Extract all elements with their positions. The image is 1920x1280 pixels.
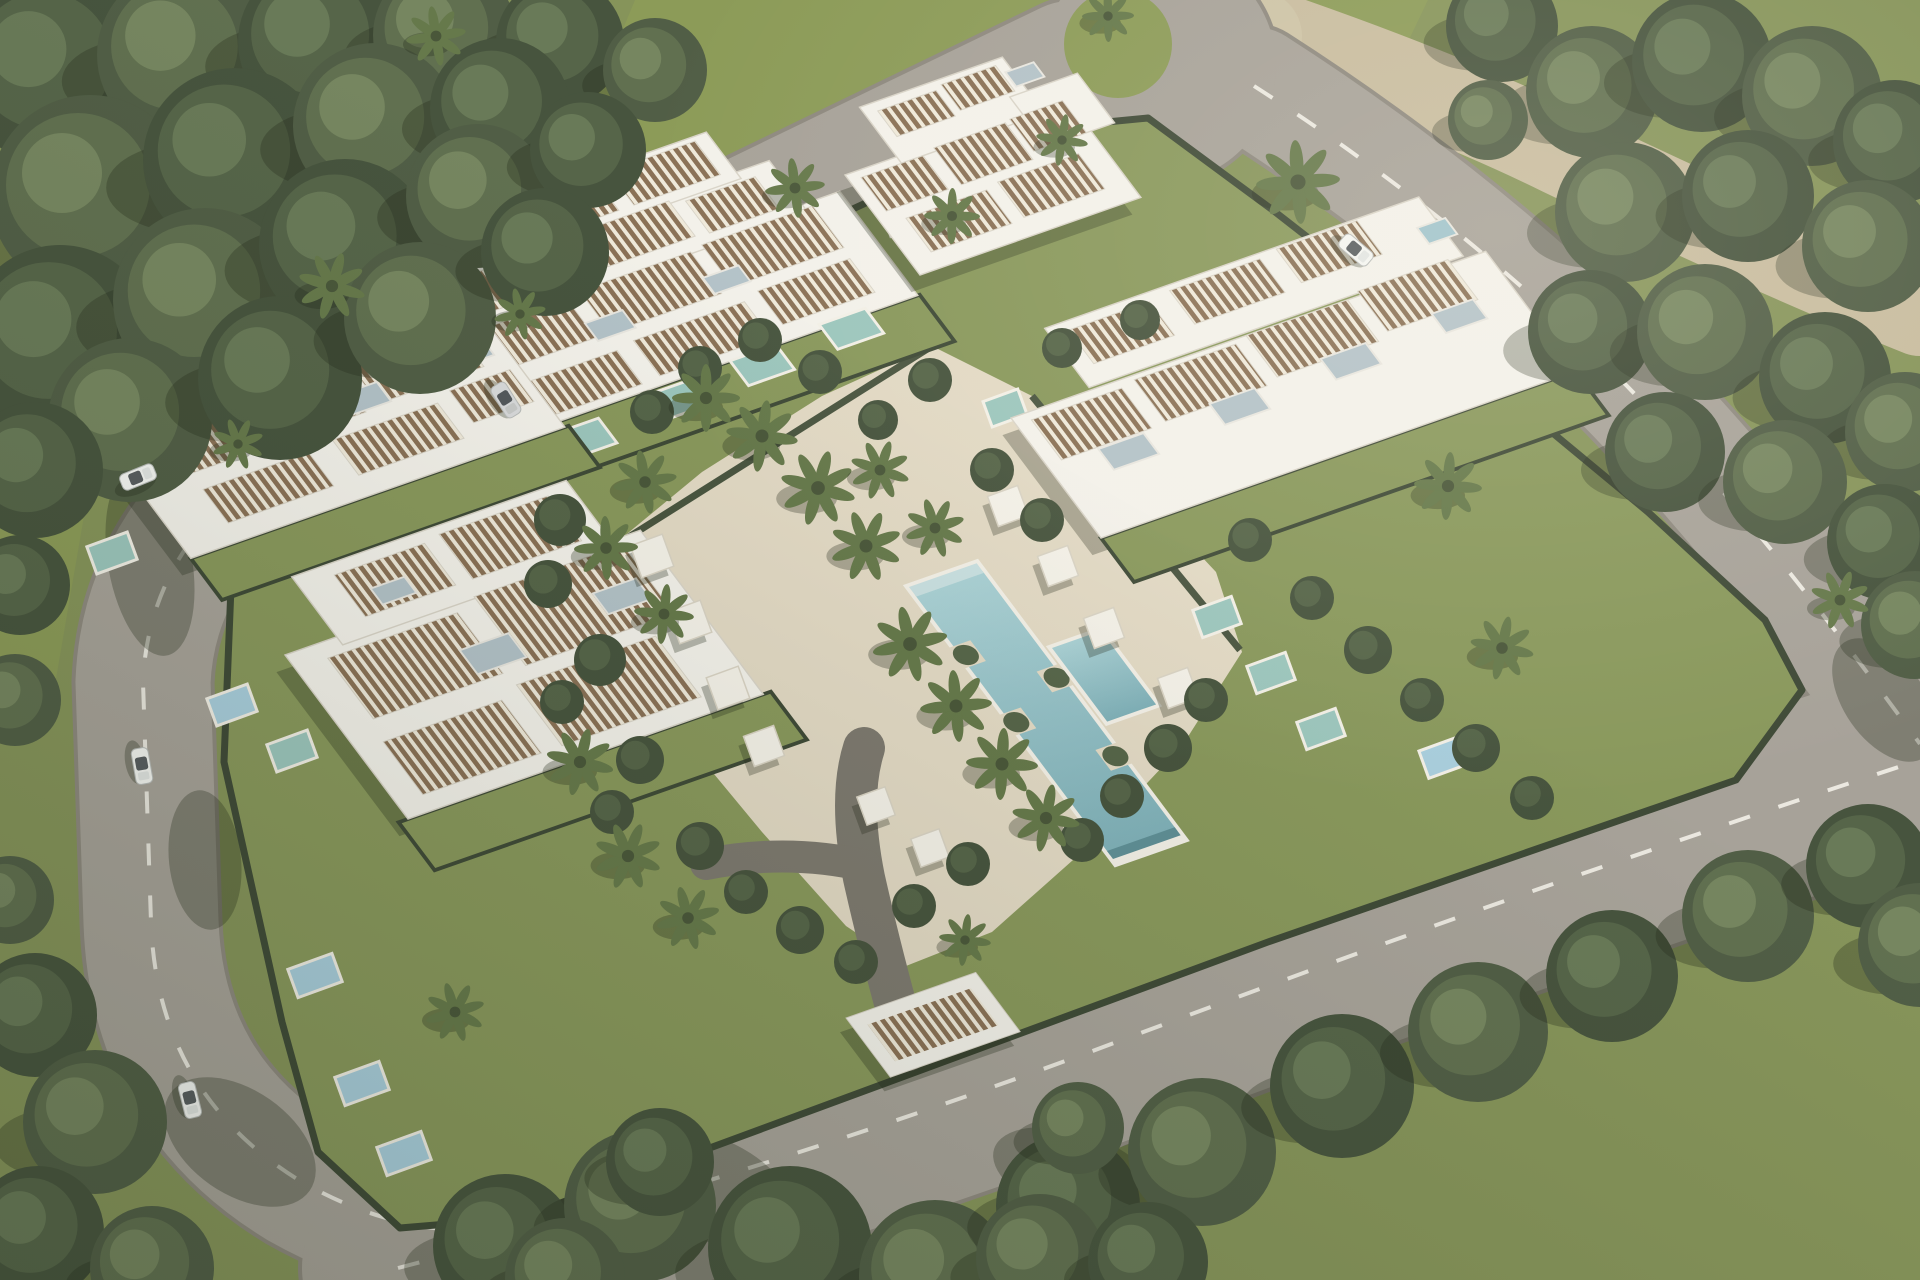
lighting-overlay [0, 0, 1920, 1280]
aerial-render-stage [0, 0, 1920, 1280]
sunlight-overlay [0, 0, 1920, 1280]
aerial-render [0, 0, 1920, 1280]
